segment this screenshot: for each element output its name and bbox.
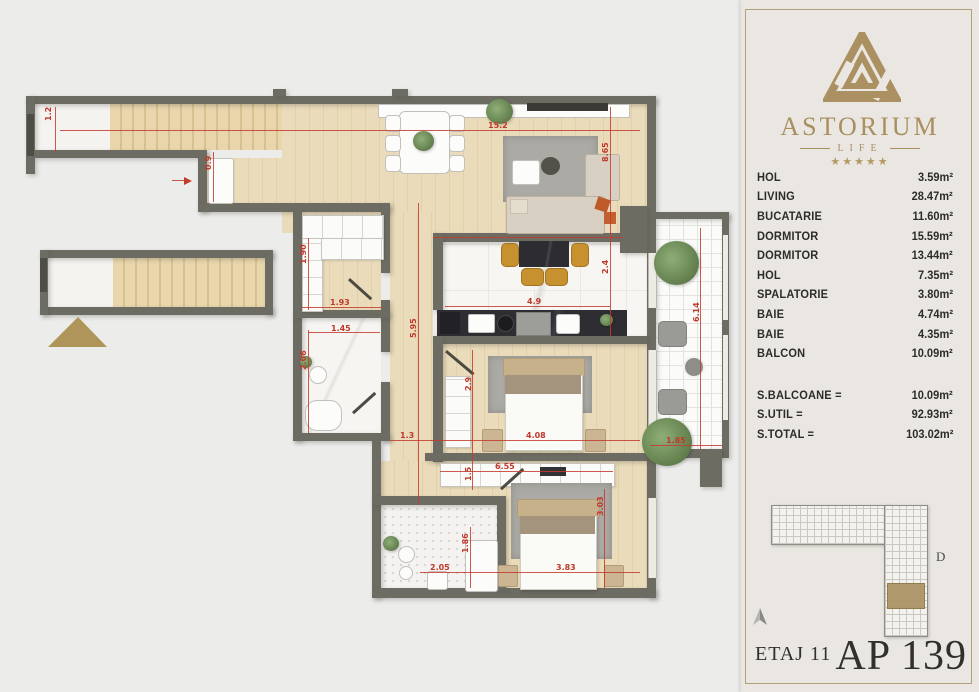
room-row: BAIE4.35m² <box>757 324 953 344</box>
entry-arrow <box>184 177 192 185</box>
chair <box>385 155 401 172</box>
wall <box>433 336 647 344</box>
area-totals-list: S.BALCOANE =10.09m²S.UTIL =92.93m²S.TOTA… <box>757 385 953 444</box>
dimension-line <box>420 572 640 573</box>
dimension-line <box>470 527 471 588</box>
total-row-area: 92.93m² <box>912 407 953 421</box>
dimension-line <box>445 306 610 307</box>
plant <box>600 314 613 326</box>
bar-chair <box>571 243 589 267</box>
wall <box>34 150 207 158</box>
dimension-label: 2.06 <box>299 350 308 370</box>
wall <box>40 307 273 315</box>
coffee-table <box>512 160 540 185</box>
blanket <box>505 375 581 394</box>
stairlobby-floor <box>48 258 113 307</box>
blanket <box>520 516 595 534</box>
dimension-line <box>308 238 309 310</box>
wall <box>372 496 497 505</box>
dimension-label: 1.93 <box>330 298 350 307</box>
plant <box>383 536 399 551</box>
room-row: HOL7.35m² <box>757 265 953 285</box>
dimension-line <box>610 107 611 336</box>
room-row-area: 4.74m² <box>918 307 953 321</box>
room-row: BAIE4.74m² <box>757 304 953 324</box>
keyplan-apartment-highlight <box>887 583 925 609</box>
fridge <box>440 312 460 334</box>
wall-stub <box>273 89 286 96</box>
room-row: DORMITOR13.44m² <box>757 245 953 265</box>
total-row-label: S.TOTAL = <box>757 427 814 441</box>
apartment-number: AP 139 <box>835 632 967 680</box>
astorium-logo-icon <box>823 32 901 108</box>
wall <box>265 250 273 315</box>
nightstand <box>498 565 518 587</box>
chair <box>449 135 465 152</box>
hob <box>497 315 514 332</box>
brand-name: ASTORIUM <box>741 112 979 142</box>
dimension-label: 1.90 <box>299 244 308 264</box>
brand-subtitle: LIFE <box>741 143 979 154</box>
bar-chair <box>501 243 519 267</box>
door-leaf <box>40 258 47 292</box>
bathtub <box>305 400 342 431</box>
room-row-area: 3.59m² <box>918 170 953 184</box>
stove <box>516 312 551 336</box>
room-row-label: HOL <box>757 170 781 184</box>
window <box>648 498 657 578</box>
room-row-label: BAIE <box>757 307 784 321</box>
section-label: D <box>936 549 945 565</box>
dimension-line <box>55 107 56 152</box>
washbasin <box>398 546 415 563</box>
total-row: S.TOTAL =103.02m² <box>757 424 953 444</box>
dimension-label: 0.9 <box>204 156 213 170</box>
pillow <box>510 199 528 214</box>
side-table <box>541 157 560 175</box>
washbasin <box>309 366 327 384</box>
dimension-label: 6.14 <box>692 302 701 322</box>
room-row-area: 11.60m² <box>912 209 953 223</box>
building-keyplan <box>771 505 927 636</box>
dimension-label: 2.9 <box>464 377 473 391</box>
washbasin <box>399 566 413 580</box>
dimension-label: 4.08 <box>526 431 546 440</box>
dimension-label: 1.5 <box>464 467 473 481</box>
decor-line <box>890 148 920 149</box>
keyplan-wing-horizontal <box>771 505 893 545</box>
north-arrow-icon <box>749 606 771 628</box>
dimension-line <box>418 203 419 505</box>
wall <box>433 233 443 310</box>
decor-line <box>800 148 830 149</box>
dimension-label: 5.95 <box>409 318 418 338</box>
staircase-top <box>110 104 284 150</box>
total-row: S.BALCOANE =10.09m² <box>757 385 953 405</box>
total-row-area: 10.09m² <box>912 388 953 402</box>
room-row: DORMITOR15.59m² <box>757 226 953 246</box>
chair <box>449 155 465 172</box>
room-row-label: DORMITOR <box>757 248 818 262</box>
staircase-left <box>113 258 267 307</box>
room-row-label: BAIE <box>757 327 784 341</box>
bar-chair <box>521 268 544 286</box>
room-row: LIVING28.47m² <box>757 187 953 207</box>
dimension-label: 2.4 <box>601 260 610 274</box>
wall <box>425 453 647 461</box>
total-row: S.UTIL =92.93m² <box>757 405 953 425</box>
dimension-label: 3.83 <box>556 563 576 572</box>
dimension-line <box>390 440 640 441</box>
dimension-line <box>60 130 640 131</box>
dimension-label: 1.3 <box>400 431 414 440</box>
closet-row <box>321 238 384 260</box>
dimension-label: 1.2 <box>44 107 53 121</box>
wall <box>293 433 390 441</box>
room-row-label: LIVING <box>757 189 795 203</box>
wall <box>381 300 390 352</box>
dimension-label: 1.85 <box>666 436 686 445</box>
balcony-wall <box>700 449 722 487</box>
balcony-chair <box>658 321 687 347</box>
balcony-glass <box>723 335 728 420</box>
cutting-board <box>556 314 580 334</box>
room-row-area: 7.35m² <box>918 268 953 282</box>
room-row-area: 28.47m² <box>912 189 953 203</box>
dimension-label: 2.05 <box>430 563 450 572</box>
room-row-area: 10.09m² <box>912 346 953 360</box>
plant <box>654 241 699 285</box>
chair <box>385 135 401 152</box>
kitchen-island <box>519 241 569 267</box>
room-row-area: 15.59m² <box>912 229 953 243</box>
dimension-line <box>213 152 214 202</box>
room-row-area: 4.35m² <box>918 327 953 341</box>
dimension-line <box>650 445 722 446</box>
wall-pillar <box>620 206 647 253</box>
room-row-label: BUCATARIE <box>757 209 822 223</box>
plant <box>413 131 434 151</box>
balcony-table <box>683 356 705 378</box>
room-row-label: HOL <box>757 268 781 282</box>
direction-arrow <box>48 317 107 347</box>
balcony-chair <box>658 389 687 415</box>
dimension-label: 3.03 <box>596 496 605 516</box>
dimension-label: 1.86 <box>461 533 470 553</box>
room-row: SPALATORIE3.80m² <box>757 285 953 305</box>
door-leaf <box>27 114 34 156</box>
dimension-label: 1.45 <box>331 324 351 333</box>
nightstand <box>604 565 624 587</box>
room-row: BUCATARIE11.60m² <box>757 206 953 226</box>
wall-bottom <box>372 588 656 598</box>
dimension-label: 4.9 <box>527 297 541 306</box>
keyplan-wing-vertical <box>884 505 928 637</box>
wall <box>198 203 390 212</box>
washing-machine <box>427 571 448 590</box>
dimension-line <box>302 307 382 308</box>
dimension-label: 15.2 <box>488 121 508 130</box>
room-row-area: 13.44m² <box>912 248 953 262</box>
bar-chair <box>545 268 568 286</box>
room-row: BALCON10.09m² <box>757 343 953 363</box>
balcony-wall <box>656 212 729 219</box>
room-row: HOL3.59m² <box>757 167 953 187</box>
dimension-label: 8.65 <box>601 142 610 162</box>
dimension-line <box>308 330 309 433</box>
room-row-area: 3.80m² <box>918 287 953 301</box>
dimension-line <box>433 237 623 238</box>
floor-label: ETAJ 11 <box>755 643 831 666</box>
balcony-glass <box>723 235 728 320</box>
total-row-label: S.UTIL = <box>757 407 803 421</box>
wall <box>40 250 273 258</box>
room-row-label: BALCON <box>757 346 805 360</box>
room-row-label: SPALATORIE <box>757 287 828 301</box>
room-area-list: HOL3.59m²LIVING28.47m²BUCATARIE11.60m²DO… <box>757 167 953 363</box>
tv-console <box>527 103 608 111</box>
entry-arrow-line <box>172 180 184 181</box>
sink <box>468 314 495 333</box>
total-row-area: 103.02m² <box>906 427 953 441</box>
closet-row <box>302 215 384 240</box>
room-row-label: DORMITOR <box>757 229 818 243</box>
dimension-line <box>700 228 701 449</box>
dimension-label: 6.55 <box>495 462 515 471</box>
wall <box>372 441 381 598</box>
wall <box>433 336 443 462</box>
total-row-label: S.BALCOANE = <box>757 388 842 402</box>
wall-stub <box>392 89 408 96</box>
